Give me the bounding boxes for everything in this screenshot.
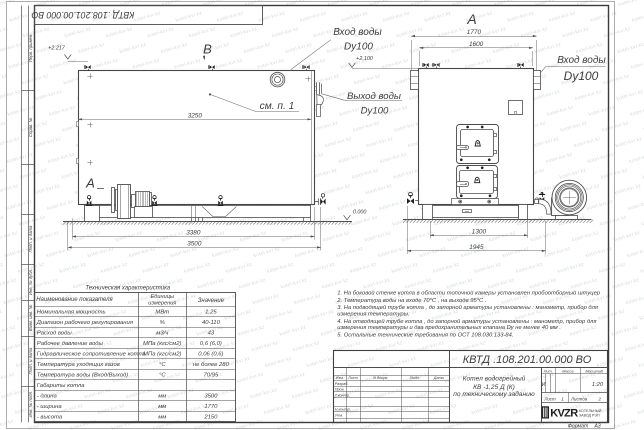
svg-text:3500: 3500 xyxy=(204,394,218,400)
svg-text:МПа (кгс/см2): МПа (кгс/см2) xyxy=(143,352,182,358)
svg-text:Инв. № подл.: Инв. № подл. xyxy=(28,391,33,418)
svg-text:Н.контр.: Н.контр. xyxy=(335,408,351,412)
svg-text:- ширина: - ширина xyxy=(37,404,63,410)
svg-text:Листов: Листов xyxy=(570,397,588,402)
svg-text:Вход воды: Вход воды xyxy=(333,27,382,38)
svg-text:не более 280: не более 280 xyxy=(193,362,230,368)
svg-text:N докум.: N докум. xyxy=(373,376,388,380)
svg-text:- высота: - высота xyxy=(37,415,63,421)
svg-text:измерения температуры.: измерения температуры. xyxy=(337,312,409,318)
svg-text:- длина: - длина xyxy=(37,394,58,400)
svg-text:3250: 3250 xyxy=(188,113,203,120)
svg-text:мм: мм xyxy=(158,415,166,421)
svg-text:%: % xyxy=(160,320,165,326)
svg-text:Взам. инв. №: Взам. инв. № xyxy=(28,304,33,331)
svg-text:5. Остальные технические треб: 5. Остальные технические требования по О… xyxy=(337,333,513,339)
svg-text:Лист: Лист xyxy=(543,397,556,402)
svg-text:Лит.: Лит. xyxy=(543,370,553,374)
svg-text:Подп. и дата: Подп. и дата xyxy=(28,225,33,253)
svg-text:МВт: МВт xyxy=(155,310,169,316)
svg-text:1:20: 1:20 xyxy=(592,382,604,388)
svg-text:Подп. и дата: Подп. и дата xyxy=(28,347,33,375)
svg-text:МПа (кгс/см2): МПа (кгс/см2) xyxy=(143,341,182,347)
svg-text:1600: 1600 xyxy=(469,41,484,48)
svg-text:Масштаб: Масштаб xyxy=(585,370,604,374)
svg-text:2. Температура воды на входе: 2. Температура воды на входе 70°С , на в… xyxy=(336,298,486,304)
svg-text:1300: 1300 xyxy=(472,228,487,235)
svg-text:Температура воды (Вход/Выход): Температура воды (Вход/Выход) xyxy=(37,373,128,379)
svg-text:Выход воды: Выход воды xyxy=(347,91,401,102)
svg-text:Дата: Дата xyxy=(433,376,444,380)
svg-text:0,6 (6,0): 0,6 (6,0) xyxy=(200,341,222,347)
svg-text:Габариты котла: Габариты котла xyxy=(37,383,85,389)
svg-text:1770: 1770 xyxy=(467,29,482,36)
svg-text:Масса: Масса xyxy=(562,370,573,374)
svg-text:°С: °С xyxy=(159,362,166,368)
svg-text:KVZR: KVZR xyxy=(550,408,578,420)
svg-text:В: В xyxy=(203,42,212,57)
svg-text:мм: мм xyxy=(158,394,166,400)
svg-text:Температура уходящих газов: Температура уходящих газов xyxy=(37,362,120,368)
svg-text:Т.контр.: Т.контр. xyxy=(335,393,350,397)
svg-text:70/95: 70/95 xyxy=(204,373,219,379)
svg-text:1. На боковой стенке котла в: 1. На боковой стенке котла в области топ… xyxy=(337,290,600,297)
svg-text:И: И xyxy=(542,382,546,388)
svg-text:Котел водогрейный: Котел водогрейный xyxy=(463,375,526,383)
svg-text:Dy100: Dy100 xyxy=(564,69,599,83)
svg-text:Dy100: Dy100 xyxy=(344,41,373,52)
svg-text:А: А xyxy=(85,176,95,191)
svg-text:43: 43 xyxy=(208,331,215,337)
svg-text:3500: 3500 xyxy=(187,241,202,248)
svg-text:Техническая характеристика: Техническая характеристика xyxy=(85,285,171,291)
svg-text:4. На отводящей трубе котла ,: 4. На отводящей трубе котла , до запорно… xyxy=(337,318,596,325)
svg-text:КВТД .108.201.00.000 ВО: КВТД .108.201.00.000 ВО xyxy=(31,10,134,20)
svg-text:измерения: измерения xyxy=(148,300,176,306)
svg-text:мм: мм xyxy=(158,404,166,410)
svg-text:Значение: Значение xyxy=(198,298,225,304)
svg-text:Пров.: Пров. xyxy=(335,387,345,391)
svg-text:Наименование показателя: Наименование показателя xyxy=(36,297,113,303)
svg-text:1770: 1770 xyxy=(204,404,218,410)
svg-text:КВ -1,25 Д (К): КВ -1,25 Д (К) xyxy=(473,384,515,391)
svg-text:Расход воды: Расход воды xyxy=(37,331,73,337)
svg-text:1,25: 1,25 xyxy=(205,310,217,316)
svg-text:40-110: 40-110 xyxy=(202,320,221,326)
svg-text:2150: 2150 xyxy=(203,415,218,421)
svg-text:Утв.: Утв. xyxy=(335,414,344,418)
svg-text:2: 2 xyxy=(597,397,601,402)
svg-text:Гидравлическое сопротивление к: Гидравлическое сопротивление котла xyxy=(37,352,146,358)
svg-text:Подп.: Подп. xyxy=(410,376,420,380)
svg-text:КВТД .108.201.00.000 ВО: КВТД .108.201.00.000 ВО xyxy=(463,354,592,366)
svg-text:Номинальная мощность: Номинальная мощность xyxy=(37,310,106,316)
svg-text:1945: 1945 xyxy=(469,244,484,251)
svg-text:Справ. №: Справ. № xyxy=(28,117,33,137)
svg-text:м3/ч: м3/ч xyxy=(156,331,168,337)
svg-text:Разраб.: Разраб. xyxy=(335,382,349,386)
svg-text:Инв. № дубл.: Инв. № дубл. xyxy=(28,269,33,295)
svg-text:Формат: Формат xyxy=(568,423,589,429)
svg-text:0.000: 0.000 xyxy=(353,210,367,216)
svg-text:Перв. примен.: Перв. примен. xyxy=(28,34,33,63)
svg-text:0,06 (0,6): 0,06 (0,6) xyxy=(198,352,223,358)
svg-text:КОТЕЛЬНЫЙ: КОТЕЛЬНЫЙ xyxy=(579,409,602,413)
svg-text:измерения температуры и два пр: измерения температуры и два предохраните… xyxy=(337,325,561,331)
svg-text:°С: °С xyxy=(159,373,166,379)
svg-text:Единицы: Единицы xyxy=(151,294,174,300)
svg-text:3380: 3380 xyxy=(186,230,201,237)
svg-text:А3: А3 xyxy=(593,423,600,429)
svg-text:Рабочее давление воды: Рабочее давление воды xyxy=(37,341,104,347)
svg-text:3. На подводящей трубе котла: 3. На подводящей трубе котла , до запорн… xyxy=(337,304,598,311)
svg-text:см. п. 1: см. п. 1 xyxy=(260,101,295,112)
svg-text:Изм.: Изм. xyxy=(336,376,344,380)
svg-text:Диапазон рабочего регулировани: Диапазон рабочего регулирования xyxy=(36,320,134,326)
svg-text:по техническому заданию: по техническому заданию xyxy=(453,390,535,398)
svg-text:ЗАВОД РЭП: ЗАВОД РЭП xyxy=(579,413,600,417)
svg-text:Вход воды: Вход воды xyxy=(557,55,606,66)
svg-text:Dy100: Dy100 xyxy=(361,106,389,117)
svg-text:А: А xyxy=(466,11,476,27)
svg-text:Лист: Лист xyxy=(347,376,358,380)
svg-text:+2.100: +2.100 xyxy=(356,56,373,62)
svg-text:+2.217: +2.217 xyxy=(48,46,66,52)
